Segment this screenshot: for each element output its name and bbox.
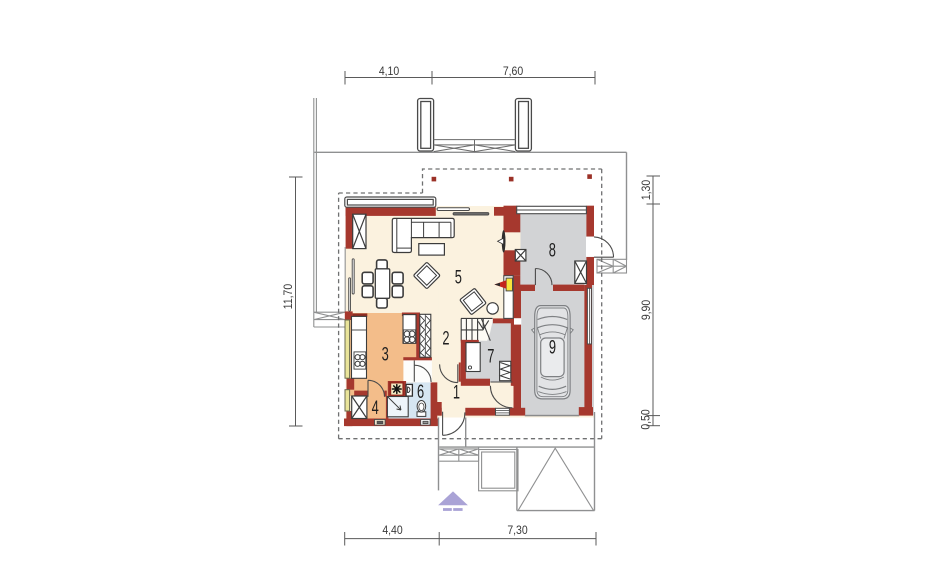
svg-text:6: 6 <box>417 380 424 402</box>
svg-text:8: 8 <box>549 239 556 261</box>
svg-text:0,50: 0,50 <box>640 409 653 429</box>
svg-text:11,70: 11,70 <box>283 284 296 309</box>
svg-text:4: 4 <box>372 396 379 418</box>
svg-text:4,40: 4,40 <box>382 525 402 538</box>
svg-text:1,30: 1,30 <box>641 180 654 200</box>
svg-text:9,90: 9,90 <box>641 300 654 320</box>
svg-text:3: 3 <box>382 343 389 365</box>
svg-text:5: 5 <box>455 266 462 288</box>
svg-text:7,30: 7,30 <box>507 525 527 538</box>
svg-text:7,60: 7,60 <box>503 66 523 79</box>
svg-text:1: 1 <box>453 381 460 403</box>
svg-text:4,10: 4,10 <box>379 66 399 79</box>
svg-text:7: 7 <box>487 345 494 367</box>
svg-text:9: 9 <box>549 336 556 358</box>
svg-text:2: 2 <box>442 327 449 349</box>
